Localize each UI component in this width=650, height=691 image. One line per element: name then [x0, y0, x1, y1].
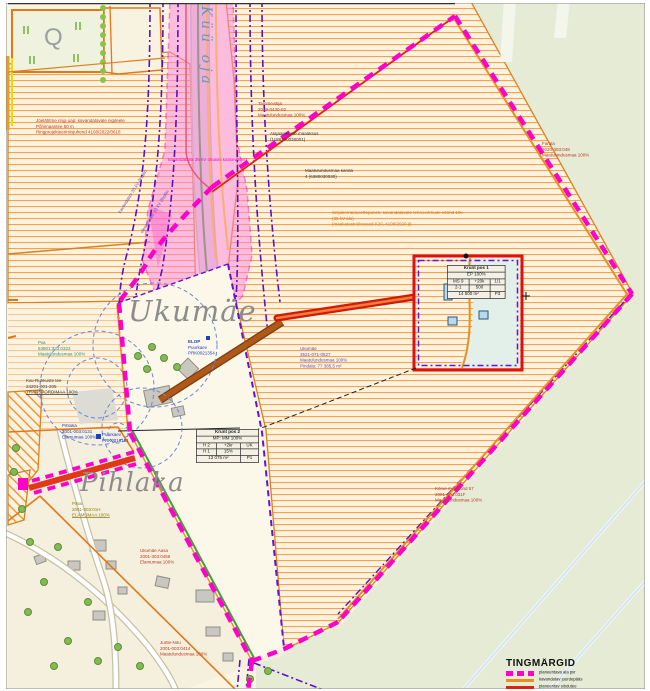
legend-item-road: planeeritav sõidutee — [506, 684, 648, 690]
access-swatch — [506, 679, 534, 682]
quarry-symbol: Q — [44, 24, 63, 52]
plot-table-pos1: Krunt pos 1 EP 100% MS 9 +20k 1/1 2-1 50… — [447, 265, 506, 299]
top-left-parcels — [12, 5, 162, 83]
legend-item-access: kavandatav juurdepääs — [506, 677, 648, 683]
place-label-pihlaka: Pihlaka — [80, 468, 185, 498]
annotation-metskond: Kõrve metskond 57 2001-303:031F Maatulun… — [435, 487, 482, 504]
annotation-piia: Piia 63801:333:0323 Maatulundusmaa 100% — [38, 341, 85, 358]
plot-table-pos2: Krunt pos 2 MP: MM 100% H 2 +2kr UK H 1 … — [196, 429, 259, 463]
stream-label: Küü oja — [198, 6, 214, 88]
map-svg — [0, 0, 650, 691]
legend-item-boundary: planeeritava ala piir — [506, 670, 648, 676]
annotation-kiiu-tee: Kiiu-Ruhkuste tee 24201-001-205 TRANSPOR… — [26, 379, 78, 396]
legend: TINGMÄRGID planeeritava ala piir kavanda… — [506, 658, 648, 691]
annotation-pihlaka-parcel: Pihlaka 2001-003:0131 Elamumaa 100% — [62, 424, 96, 441]
annotation-elop: ELOP Puurkaev PRK0021354 — [188, 340, 215, 357]
legend-title: TINGMÄRGID — [506, 658, 648, 669]
annotation-ohuliin: kavandatava 35 kV õhuliini kaitsevöönd — [168, 158, 247, 164]
planning-map: Küü oja Q Ukumäe Pihlaka Jõelähtme ringi… — [0, 0, 650, 691]
annotation-farula: Farula 2020-303:048 Maatulundusmaa 100% — [542, 142, 589, 159]
road-swatch — [506, 686, 534, 689]
annotation-maatulundus: Maatulundusmaa kanda 4 (6380030030) — [305, 169, 353, 180]
annotation-puurkaev2: Puurkaev PRK0013151 — [102, 433, 129, 444]
annotation-servituut: Seljakorraldusettepanek: kavandatavate t… — [332, 211, 463, 228]
place-label-ukumae: Ukumäe — [128, 294, 257, 328]
annotation-restriction: Jõelähtme ringi uap: kavandatavale riigi… — [36, 119, 125, 136]
annotation-ukumae-aasa: Ukumäe Aasa 2001-303:0456 Elamumaa 100% — [140, 549, 174, 566]
annotation-ukumae-parcel: Ukumäe 3521-071-0527 Maatulundusmaa 100%… — [300, 347, 347, 370]
annotation-jurtle: Jurtle-Nõu 2001-003:0414 Maatulundusmaa … — [160, 641, 207, 658]
annotation-tammevalja: Tammevälja 2019-0430-02 Maatulundusmaa 1… — [258, 102, 305, 119]
boundary-swatch — [506, 671, 534, 676]
annotation-substation: Alajaanikuste maaüksus (1188200030001) — [270, 132, 319, 143]
annotation-pihla: Pihla 2001-003:01H ELAMUMAA 100% — [72, 502, 110, 519]
